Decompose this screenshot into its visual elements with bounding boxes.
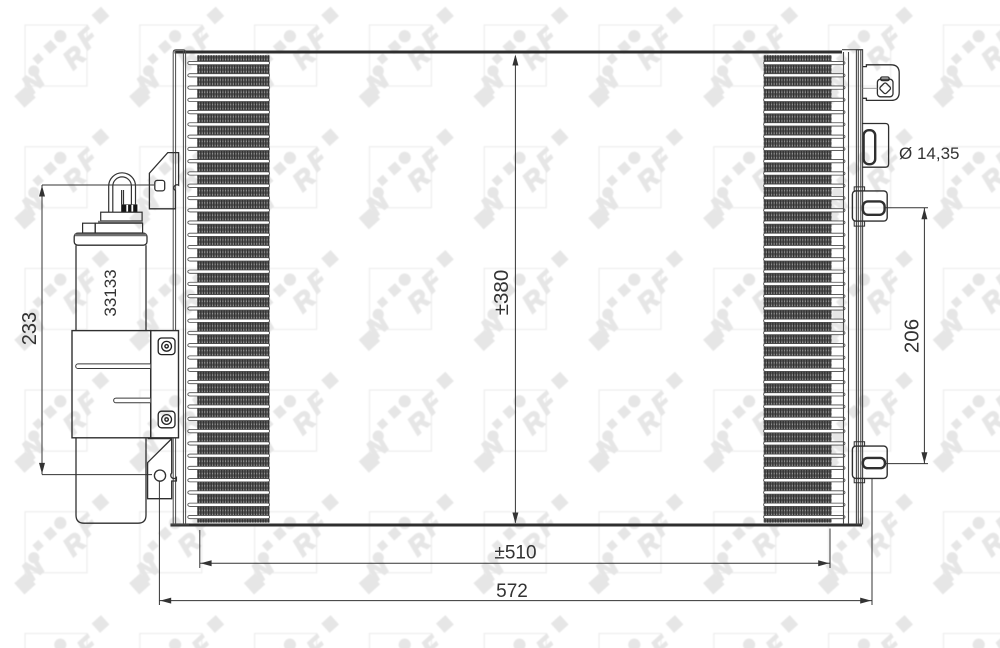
svg-text:233: 233	[19, 312, 41, 345]
svg-text:±380: ±380	[490, 270, 513, 315]
svg-text:572: 572	[496, 581, 528, 602]
svg-text:Ø 14,35: Ø 14,35	[899, 144, 960, 163]
svg-text:±510: ±510	[494, 543, 536, 564]
svg-text:206: 206	[901, 319, 924, 353]
svg-text:33133: 33133	[101, 269, 120, 316]
